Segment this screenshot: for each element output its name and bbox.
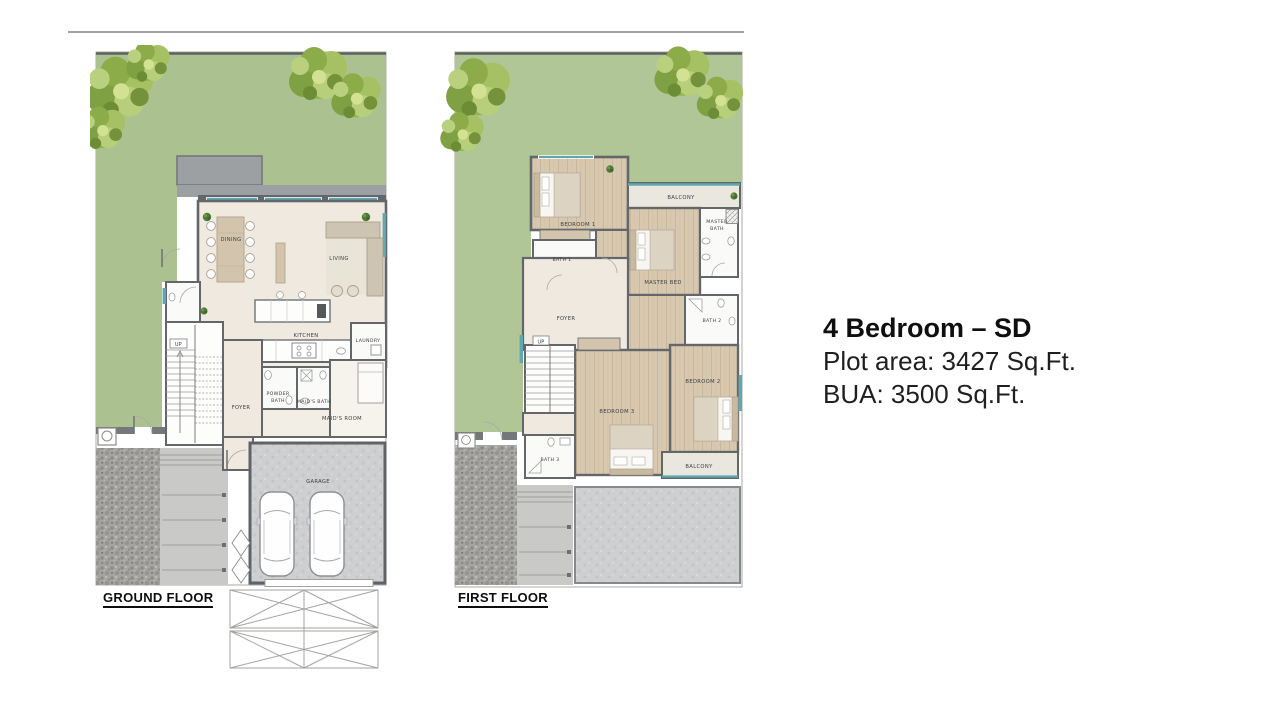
wc-icon	[169, 293, 175, 301]
first-floor-label: FIRST FLOOR	[458, 590, 548, 608]
bed-bedroom2	[694, 397, 738, 441]
room-label-bedroom2: BEDROOM 2	[685, 379, 720, 385]
bedroom3-closet	[578, 338, 620, 350]
stairs-up-label: UP	[537, 340, 544, 346]
first-driveway	[575, 487, 740, 583]
ground-floor-plan: DINING LIVING KITCHEN LAUNDRY POWDER BAT…	[90, 45, 386, 668]
garage-door	[265, 580, 373, 587]
room-label-dining: DINING	[221, 237, 242, 243]
washer-icon	[371, 345, 381, 355]
room-label-garage: GARAGE	[306, 479, 330, 485]
first-staircase	[525, 336, 575, 413]
room-label-bath3: BATH 3	[540, 457, 559, 463]
room-label-powder-bath-1: POWDER	[266, 391, 289, 397]
room-label-balcony-bottom: BALCONY	[685, 464, 713, 470]
driveway-canopy	[230, 590, 378, 668]
car-2	[307, 492, 347, 576]
plant-icon	[362, 213, 370, 221]
ground-floor-label: GROUND FLOOR	[103, 590, 213, 608]
unit-title: 4 Bedroom – SD	[823, 311, 1076, 345]
first-stone-patio	[455, 445, 517, 585]
foyer-window	[520, 335, 523, 363]
first-walkway	[517, 485, 573, 585]
foyer	[223, 340, 262, 437]
floor-plans-graphic: DINING LIVING KITCHEN LAUNDRY POWDER BAT…	[90, 45, 750, 677]
room-label-living: LIVING	[329, 256, 349, 262]
closet-hatch	[726, 210, 738, 224]
ground-stone-patio	[96, 448, 160, 585]
unit-info: 4 Bedroom – SD Plot area: 3427 Sq.Ft. BU…	[823, 311, 1076, 411]
ground-walkway	[160, 448, 228, 585]
room-label-master-bath-2: BATH	[710, 226, 724, 232]
first-floor-plan: BEDROOM 1 BATH 1 BALCONY MASTER BATH MAS…	[440, 46, 743, 587]
bed-bedroom1	[534, 173, 580, 217]
car-1	[257, 492, 297, 576]
room-label-bedroom1: BEDROOM 1	[560, 222, 595, 228]
top-divider-line	[68, 31, 744, 33]
west-window	[163, 288, 166, 304]
room-label-powder-bath-2: BATH	[271, 398, 285, 404]
ground-terrace	[177, 156, 262, 185]
bedroom2-window	[739, 375, 742, 411]
vestibule	[166, 282, 200, 322]
plant-icon	[606, 165, 614, 173]
room-label-laundry: LAUNDRY	[356, 338, 381, 344]
gate-opening	[483, 432, 502, 440]
room-label-foyer: FOYER	[232, 405, 251, 411]
plant-icon	[200, 307, 207, 314]
room-label-bedroom3: BEDROOM 3	[599, 409, 634, 415]
stairs-up-label: UP	[175, 342, 182, 348]
room-label-balcony-top: BALCONY	[667, 195, 695, 201]
room-label-master-bath-1: MASTER	[706, 219, 728, 225]
room-label-master-bed: MASTER BED	[644, 280, 681, 286]
plant-icon	[203, 213, 211, 221]
corridor	[628, 295, 685, 350]
console-unit	[276, 243, 285, 283]
plant-icon	[730, 192, 737, 199]
room-label-kitchen: KITCHEN	[294, 333, 319, 339]
kitchen-counter	[260, 340, 352, 362]
bedroom1-closet	[540, 230, 590, 240]
bed-bedroom3	[610, 425, 653, 475]
room-label-maids-room: MAID'S ROOM	[322, 416, 362, 422]
room-label-maids-bath: MAID'S BATH	[297, 399, 331, 405]
hall-to-bath3	[523, 413, 575, 435]
plot-area-text: Plot area: 3427 Sq.Ft.	[823, 345, 1076, 378]
bed-master	[630, 230, 674, 270]
bedroom1-window	[539, 156, 593, 158]
room-label-foyer: FOYER	[557, 316, 576, 322]
room-label-bath2: BATH 2	[702, 318, 721, 324]
page: DINING LIVING KITCHEN LAUNDRY POWDER BAT…	[0, 0, 1280, 720]
maids-bed	[358, 363, 383, 403]
ground-staircase	[166, 322, 223, 445]
bua-text: BUA: 3500 Sq.Ft.	[823, 378, 1076, 411]
room-label-bath1: BATH 1	[552, 257, 571, 263]
gate-opening	[134, 427, 152, 434]
